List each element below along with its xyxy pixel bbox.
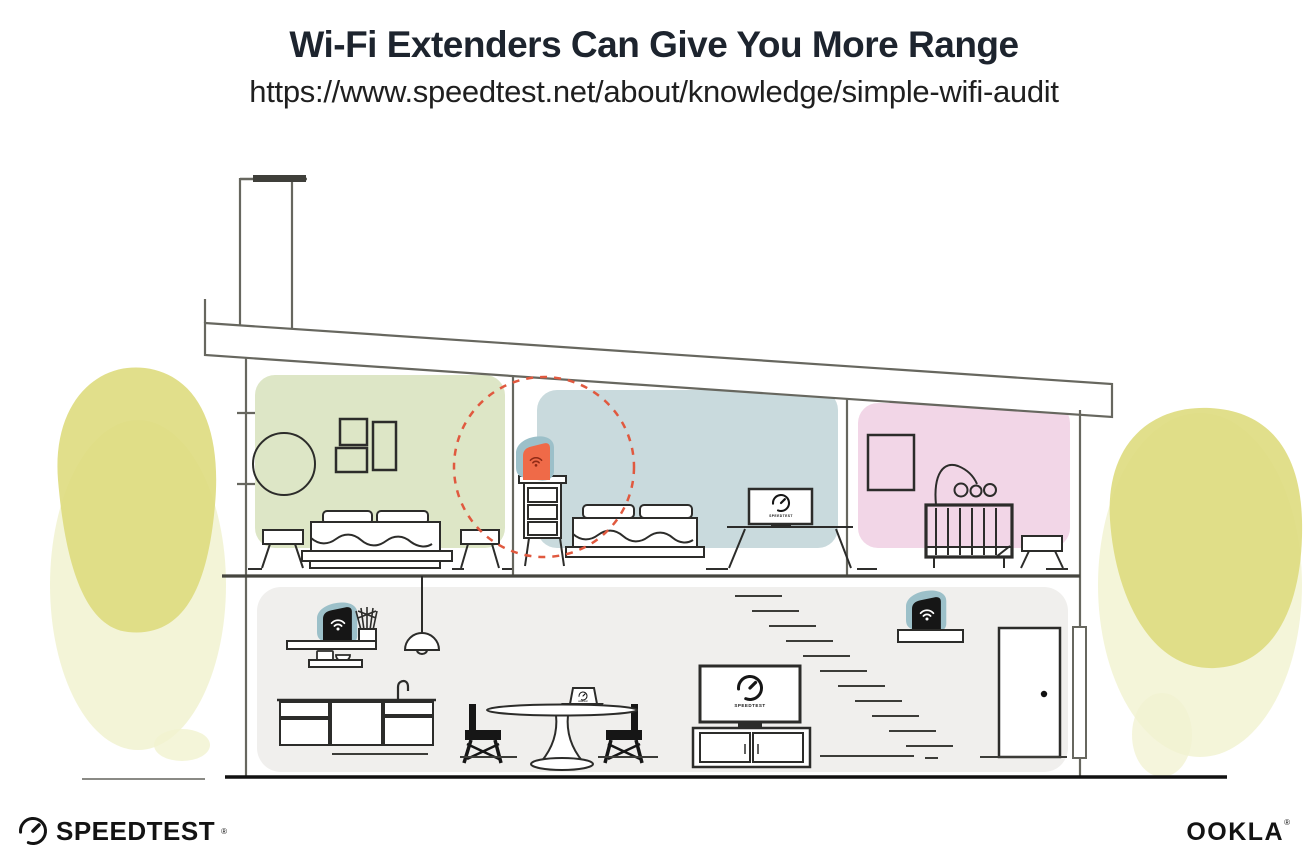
infographic-page: Wi-Fi Extenders Can Give You More Range … <box>0 0 1308 861</box>
foliage-right <box>1098 408 1302 777</box>
tv-lower: SPEEDTEST <box>693 666 810 767</box>
nightstand <box>262 530 303 568</box>
chimney-cap <box>253 175 306 182</box>
house-illustration: SPEEDTEST <box>0 0 1308 861</box>
tv-screen-brand: SPEEDTEST <box>769 514 793 518</box>
nightstand <box>461 530 499 568</box>
stool <box>1021 536 1063 568</box>
tv-screen-brand: SPEEDTEST <box>734 703 765 708</box>
dresser <box>519 476 566 566</box>
room-bg-pink-nursery <box>858 403 1070 548</box>
wifi-extender <box>516 436 554 480</box>
door-knob <box>1041 691 1047 697</box>
source-url: https://www.speedtest.net/about/knowledg… <box>0 74 1308 110</box>
chimney <box>240 175 307 330</box>
front-door <box>999 628 1060 757</box>
shelf-board <box>287 641 376 649</box>
header: Wi-Fi Extenders Can Give You More Range … <box>0 0 1308 110</box>
foliage-left <box>50 367 226 761</box>
laptop-screen-brand: SPEEDTEST <box>578 701 588 703</box>
tv-upper: SPEEDTEST <box>749 489 812 527</box>
shelf-board <box>898 630 963 642</box>
plant-pot <box>359 629 376 641</box>
page-title: Wi-Fi Extenders Can Give You More Range <box>0 24 1308 66</box>
window-right-wall <box>1073 627 1086 758</box>
bed <box>566 505 704 557</box>
